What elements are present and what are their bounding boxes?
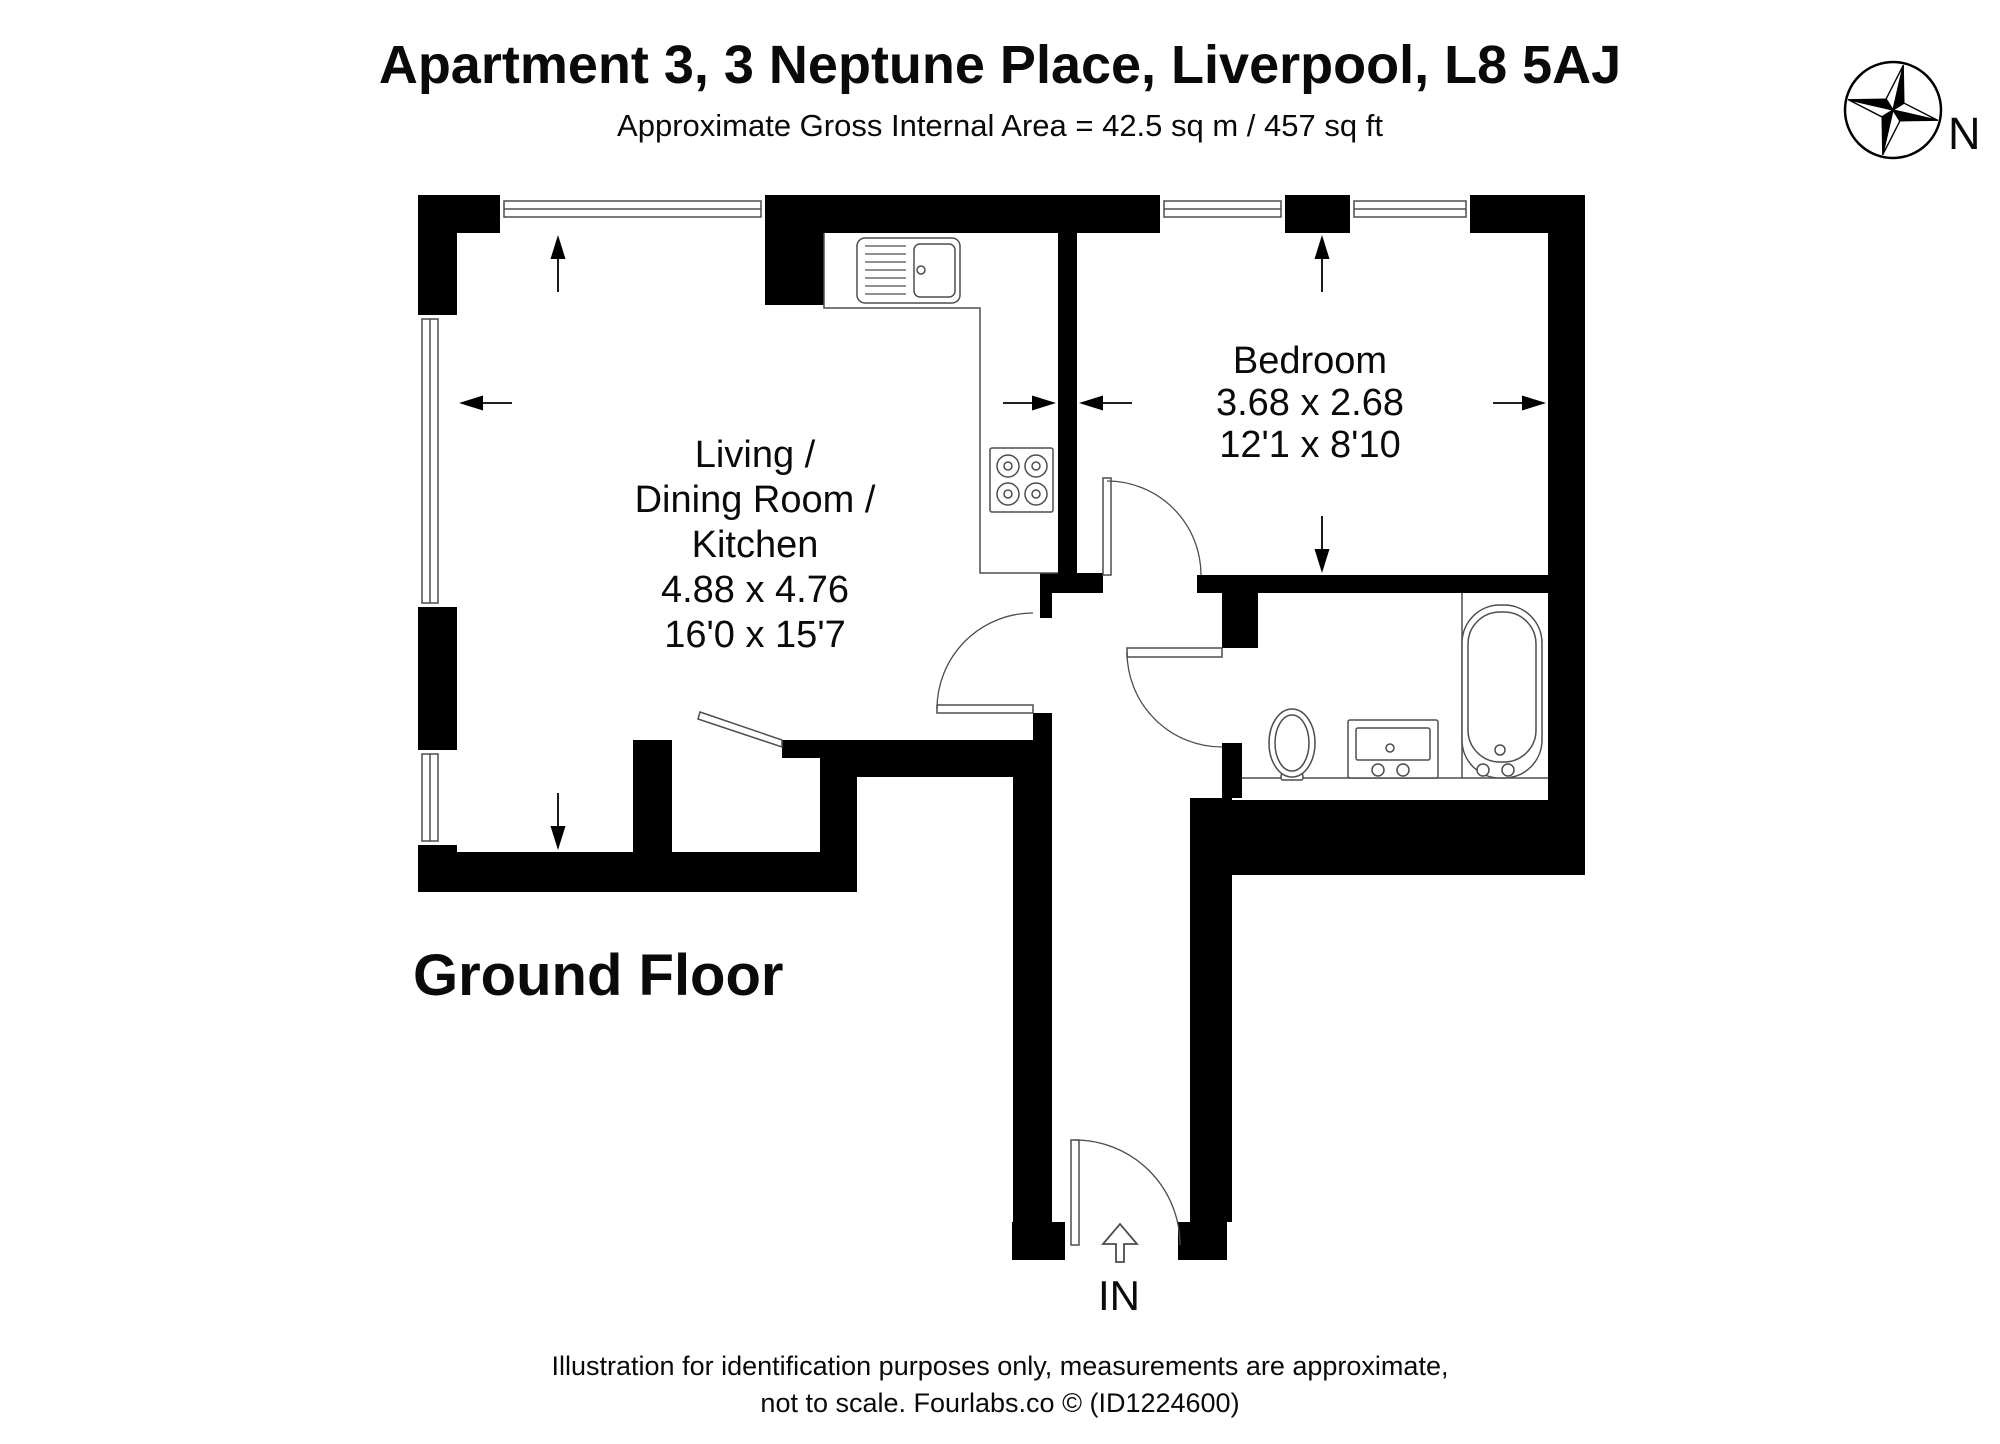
room-dim-metric: 4.88 x 4.76 <box>555 568 955 613</box>
floor-level-label: Ground Floor <box>413 942 784 1009</box>
room-label-living-dining-kitchen: Living / Dining Room / Kitchen 4.88 x 4.… <box>555 433 955 658</box>
room-name-line: Kitchen <box>555 523 955 568</box>
room-dim-imperial: 16'0 x 15'7 <box>555 613 955 658</box>
room-dim-imperial: 12'1 x 8'10 <box>1110 424 1510 466</box>
room-label-bedroom: Bedroom 3.68 x 2.68 12'1 x 8'10 <box>1110 340 1510 466</box>
area-subtitle: Approximate Gross Internal Area = 42.5 s… <box>0 108 2000 144</box>
floorplan-page: Apartment 3, 3 Neptune Place, Liverpool,… <box>0 0 2000 1444</box>
room-name-line: Bedroom <box>1110 340 1510 382</box>
room-name-line: Living / <box>555 433 955 478</box>
disclaimer: Illustration for identification purposes… <box>0 1348 2000 1422</box>
entry-arrow-icon <box>1103 1224 1137 1262</box>
room-dim-metric: 3.68 x 2.68 <box>1110 382 1510 424</box>
disclaimer-line-2: not to scale. Fourlabs.co © (ID1224600) <box>0 1385 2000 1422</box>
room-name-line: Dining Room / <box>555 478 955 523</box>
disclaimer-line-1: Illustration for identification purposes… <box>0 1348 2000 1385</box>
entrance-label: IN <box>1019 1272 1219 1320</box>
floor-plan-canvas <box>0 0 2000 1444</box>
north-label: N <box>1948 108 1981 160</box>
page-title: Apartment 3, 3 Neptune Place, Liverpool,… <box>0 34 2000 96</box>
